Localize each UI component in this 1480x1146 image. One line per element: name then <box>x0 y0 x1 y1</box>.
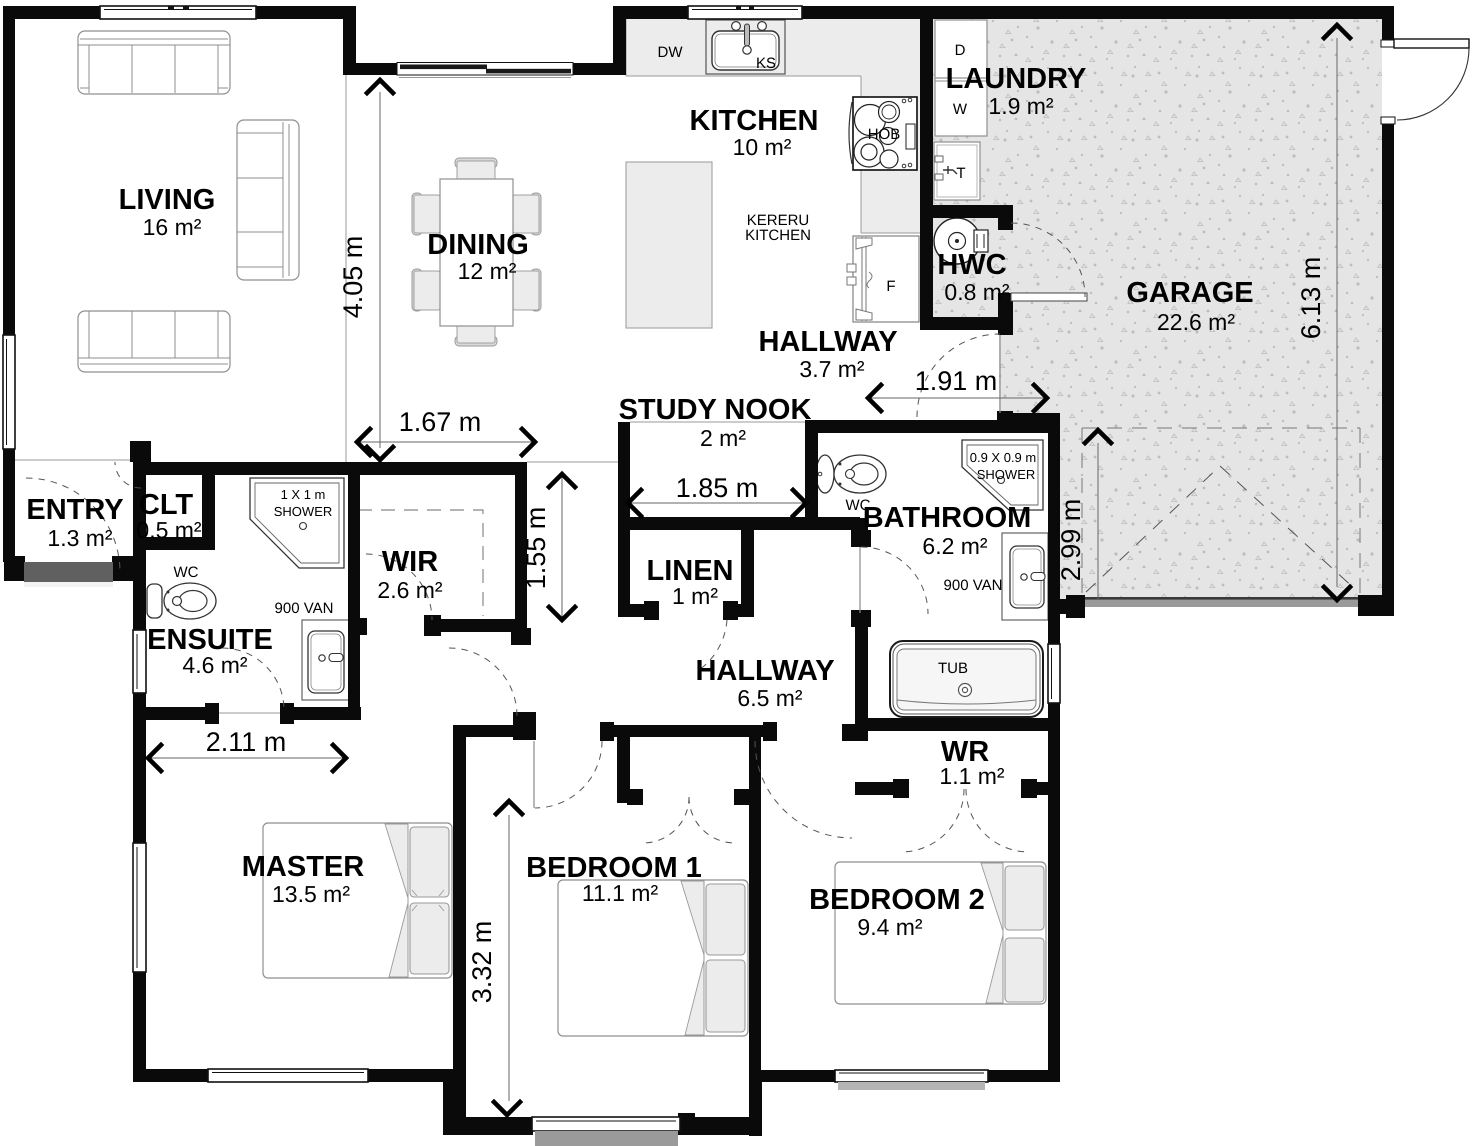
svg-text:BATHROOM: BATHROOM <box>863 502 1032 534</box>
svg-text:T: T <box>956 165 965 182</box>
svg-text:HWC: HWC <box>937 249 1006 281</box>
svg-text:1 X 1 m: 1 X 1 m <box>281 487 326 502</box>
svg-text:4.6 m²: 4.6 m² <box>182 652 248 678</box>
svg-text:2.11 m: 2.11 m <box>206 727 287 757</box>
svg-text:MASTER: MASTER <box>242 851 365 883</box>
svg-text:SHOWER: SHOWER <box>977 467 1036 482</box>
svg-text:0.8 m²: 0.8 m² <box>944 279 1010 305</box>
svg-text:900 VAN: 900 VAN <box>944 577 1003 594</box>
svg-text:SHOWER: SHOWER <box>274 504 333 519</box>
svg-text:BEDROOM 2: BEDROOM 2 <box>809 884 985 916</box>
svg-text:3.7 m²: 3.7 m² <box>799 356 865 382</box>
svg-text:16 m²: 16 m² <box>143 214 202 240</box>
svg-text:LAUNDRY: LAUNDRY <box>946 63 1087 95</box>
svg-text:6.2 m²: 6.2 m² <box>922 533 988 559</box>
svg-text:KITCHEN: KITCHEN <box>690 105 819 137</box>
svg-text:2.99 m: 2.99 m <box>1056 499 1086 582</box>
svg-text:9.4 m²: 9.4 m² <box>857 914 923 940</box>
svg-text:TUB: TUB <box>938 660 968 677</box>
svg-text:1.1 m²: 1.1 m² <box>939 763 1005 789</box>
svg-text:10 m²: 10 m² <box>733 134 792 160</box>
svg-text:4.05 m: 4.05 m <box>338 236 368 319</box>
svg-text:0.9 X 0.9 m: 0.9 X 0.9 m <box>970 450 1036 465</box>
svg-text:1.91 m: 1.91 m <box>915 366 998 396</box>
svg-text:HOB: HOB <box>868 126 901 143</box>
svg-text:1.67 m: 1.67 m <box>399 407 482 437</box>
svg-text:11.1 m²: 11.1 m² <box>582 880 659 906</box>
svg-text:STUDY NOOK: STUDY NOOK <box>619 394 812 426</box>
svg-text:6.13 m: 6.13 m <box>1296 257 1326 340</box>
svg-text:F: F <box>886 278 895 295</box>
svg-text:3.32 m: 3.32 m <box>467 921 497 1004</box>
svg-text:DINING: DINING <box>427 229 529 261</box>
svg-text:KITCHEN: KITCHEN <box>745 227 811 244</box>
svg-text:13.5 m²: 13.5 m² <box>272 881 350 907</box>
svg-text:0.5 m²: 0.5 m² <box>136 517 202 543</box>
svg-text:GARAGE: GARAGE <box>1126 277 1253 309</box>
svg-text:ENTRY: ENTRY <box>26 494 123 526</box>
svg-text:2 m²: 2 m² <box>700 425 746 451</box>
svg-text:1.85 m: 1.85 m <box>676 473 759 503</box>
svg-text:KS: KS <box>756 55 776 72</box>
svg-text:6.5 m²: 6.5 m² <box>737 685 803 711</box>
svg-text:HALLWAY: HALLWAY <box>758 326 897 358</box>
svg-text:2.6 m²: 2.6 m² <box>377 577 443 603</box>
svg-text:WC: WC <box>174 564 199 581</box>
svg-text:DW: DW <box>658 44 684 61</box>
svg-text:1.9 m²: 1.9 m² <box>988 93 1054 119</box>
svg-text:WIR: WIR <box>382 546 438 578</box>
svg-text:1.55 m: 1.55 m <box>521 507 551 590</box>
svg-text:HALLWAY: HALLWAY <box>695 655 834 687</box>
svg-text:LIVING: LIVING <box>119 184 216 216</box>
svg-text:1 m²: 1 m² <box>672 583 718 609</box>
svg-text:1.3 m²: 1.3 m² <box>47 525 113 551</box>
svg-text:900 VAN: 900 VAN <box>275 600 334 617</box>
svg-text:D: D <box>955 42 966 59</box>
svg-text:WC: WC <box>846 497 871 514</box>
svg-text:22.6 m²: 22.6 m² <box>1157 309 1235 335</box>
svg-text:W: W <box>953 101 968 118</box>
svg-text:12 m²: 12 m² <box>458 258 517 284</box>
